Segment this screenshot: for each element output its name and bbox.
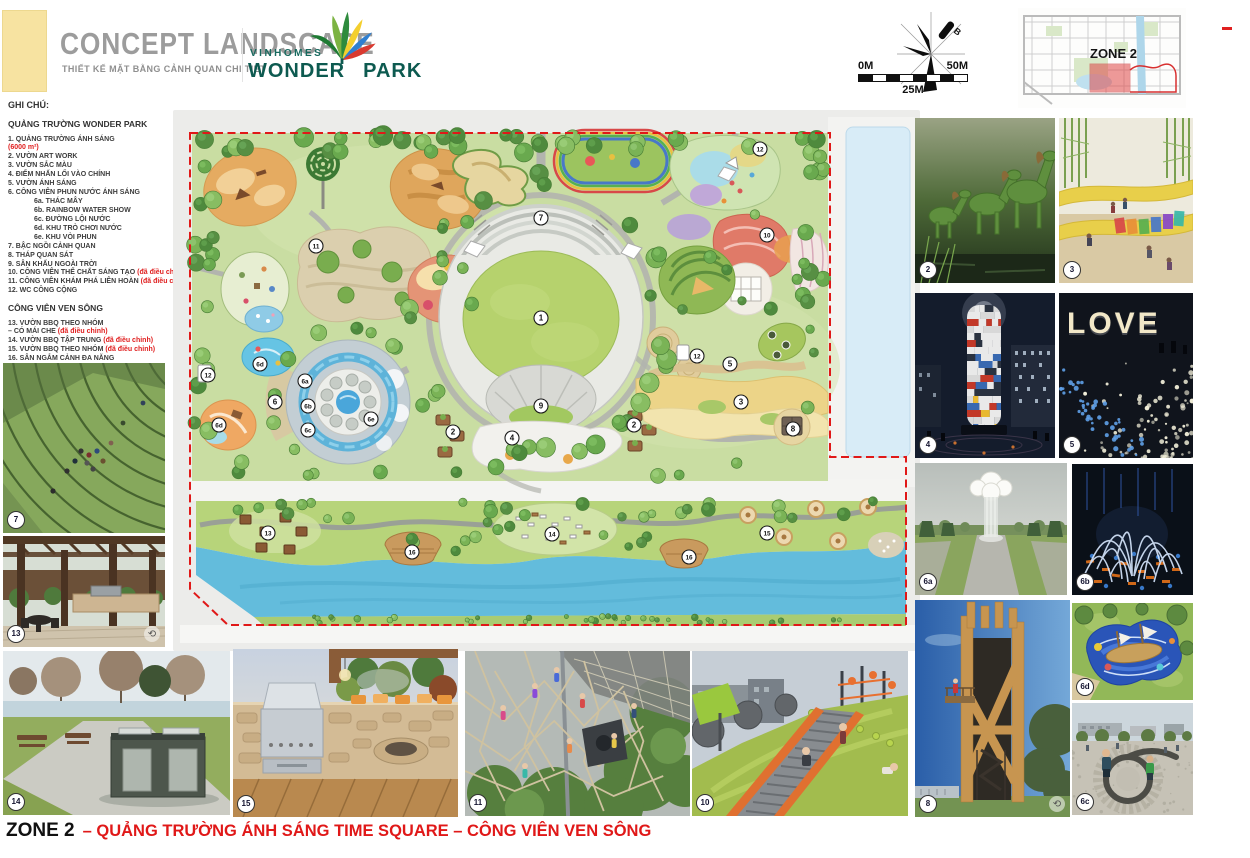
- svg-text:12: 12: [204, 373, 212, 380]
- scale-left-label: 0M: [858, 60, 873, 72]
- scale-bar: 0M 50M 25M: [858, 60, 968, 96]
- svg-text:15: 15: [763, 531, 771, 538]
- svg-text:6b: 6b: [304, 404, 312, 411]
- plan-marker-12: 12: [690, 349, 704, 363]
- svg-text:8: 8: [791, 425, 796, 434]
- plan-marker-11: 11: [309, 239, 323, 253]
- photo-rainbow-ribbon-playground: 3: [1059, 118, 1193, 283]
- plan-marker-15: 15: [760, 526, 774, 540]
- plan-marker-2: 2: [446, 425, 460, 439]
- small-pond: [245, 306, 283, 332]
- watermark-icon: ⟲: [144, 626, 160, 642]
- svg-text:9: 9: [539, 402, 544, 411]
- photo-badge: 13: [7, 625, 25, 643]
- svg-text:2: 2: [451, 428, 456, 437]
- legend-item: 6e. KHU VÒI PHUN: [8, 234, 178, 242]
- photo-park-bbq-station: 14: [3, 651, 230, 815]
- photo-hill-roller-slide: 10: [692, 651, 908, 816]
- legend: GHI CHÚ: QUẢNG TRƯỜNG WONDER PARK1. QUẢN…: [8, 100, 178, 364]
- scale-mid-label: 25M: [858, 84, 968, 96]
- legend-item: 6d. KHU TRÒ CHƠI NƯỚC: [8, 225, 178, 233]
- scale-bar-segments: [858, 74, 968, 82]
- legend-heading: GHI CHÚ:: [8, 100, 178, 110]
- photo-wooden-observation-tower: 8 ⟲: [915, 600, 1070, 817]
- photo-badge: 6a: [919, 573, 937, 591]
- plan-marker-13: 13: [261, 526, 275, 540]
- pebble-patch: [868, 532, 904, 558]
- zone-description: – QUẢNG TRƯỜNG ÁNH SÁNG TIME SQUARE – CÔ…: [83, 822, 652, 840]
- plan-marker-6: 6: [268, 395, 282, 409]
- plan-marker-6d: 6d: [212, 418, 226, 432]
- plan-marker-8: 8: [786, 422, 800, 436]
- love-sign: LOVE: [1067, 307, 1161, 340]
- plan-marker-3: 3: [734, 395, 748, 409]
- plan-marker-2: 2: [627, 418, 641, 432]
- plan-marker-7: 7: [534, 211, 548, 225]
- red-tick-mark: [1222, 27, 1232, 30]
- photo-badge: 8: [919, 795, 937, 813]
- photo-badge: 3: [1063, 261, 1081, 279]
- photo-badge: 10: [696, 794, 714, 812]
- svg-text:5: 5: [728, 360, 733, 369]
- photo-illuminated-fountain: 6b: [1072, 464, 1193, 595]
- photo-stone-bbq-kitchen: 15: [233, 649, 458, 817]
- legend-item: 7. BẬC NGỒI CẢNH QUAN: [8, 243, 178, 251]
- svg-text:6e: 6e: [367, 417, 375, 424]
- photo-grass-amphitheater: 7: [3, 363, 165, 533]
- legend-item: 1. QUẢNG TRƯỜNG ÁNH SÁNG(6000 m²): [8, 136, 178, 152]
- svg-text:14: 14: [548, 532, 556, 539]
- svg-text:7: 7: [539, 214, 544, 223]
- zone-label: ZONE 2: [6, 820, 75, 841]
- svg-text:6a: 6a: [301, 379, 309, 386]
- plan-marker-16: 16: [405, 545, 419, 559]
- photo-badge: 4: [919, 436, 937, 454]
- site-plan: 179422111012121253866a6b6c6d6d6e13161416…: [180, 117, 915, 643]
- svg-text:12: 12: [693, 354, 701, 361]
- svg-text:3: 3: [739, 398, 744, 407]
- photo-topiary-horses: 2: [915, 118, 1055, 283]
- photo-light-tower-night: 4: [915, 293, 1055, 458]
- photo-badge: 2: [919, 261, 937, 279]
- legend-item: 6. CÔNG VIÊN PHUN NƯỚC ÁNH SÁNG: [8, 189, 178, 197]
- svg-text:6d: 6d: [256, 362, 264, 369]
- plan-marker-5: 5: [723, 357, 737, 371]
- photo-stone-spiral-water-channel: 6c: [1072, 703, 1193, 815]
- svg-text:12: 12: [756, 147, 764, 154]
- sheet-caption: ZONE 2– QUẢNG TRƯỜNG ÁNH SÁNG TIME SQUAR…: [6, 820, 651, 842]
- watermark-icon: ⟲: [1049, 796, 1065, 812]
- legend-item: 15. VƯỜN BBQ THEO NHÓM (đã điều chỉnh): [8, 346, 178, 354]
- photo-badge: 6c: [1076, 793, 1094, 811]
- photo-aerial-water-playground: 6d: [1072, 603, 1193, 700]
- photo-badge: 6d: [1076, 678, 1094, 696]
- plan-marker-4: 4: [505, 431, 519, 445]
- svg-text:4: 4: [510, 434, 515, 443]
- purple-zone: [667, 214, 711, 240]
- plan-marker-14: 14: [545, 527, 559, 541]
- svg-text:6: 6: [273, 398, 278, 407]
- grill-lid: [263, 683, 321, 709]
- legend-item: 12. WC CÔNG CỘNG: [8, 287, 178, 295]
- plan-marker-6a: 6a: [298, 374, 312, 388]
- photo-badge: 7: [7, 511, 25, 529]
- accent-bar: [2, 10, 47, 92]
- plan-marker-1: 1: [534, 311, 548, 325]
- plan-marker-12: 12: [753, 142, 767, 156]
- plan-marker-9: 9: [534, 399, 548, 413]
- photo-badge: 5: [1063, 436, 1081, 454]
- legend-item: 2. VƯỜN ART WORK: [8, 153, 178, 161]
- north-label: B: [952, 26, 964, 38]
- mosaic-light-tower: [967, 305, 1001, 431]
- mid-road: [190, 479, 908, 501]
- plan-marker-16: 16: [682, 550, 696, 564]
- concept-landscape-board: CONCEPT LANDSCAPE THIẾT KẾ MẶT BẰNG CẢNH…: [0, 0, 1250, 858]
- legend-item: 11. CÔNG VIÊN KHÁM PHÁ LIÊN HOÀN (đã điề…: [8, 278, 178, 286]
- plan-marker-6d: 6d: [253, 357, 267, 371]
- svg-text:1: 1: [539, 314, 544, 323]
- legend-section-title: CÔNG VIÊN VEN SÔNG: [8, 304, 178, 314]
- sport-lawn: [659, 246, 735, 314]
- legend-item: 10. CÔNG VIÊN THỂ CHẤT SÁNG TẠO (đã điều…: [8, 269, 178, 277]
- zone2-highlight: [1090, 64, 1130, 92]
- zone2-map-label: ZONE 2: [1090, 46, 1137, 61]
- legend-item: 6b. RAINBOW WATER SHOW: [8, 207, 178, 215]
- svg-text:16: 16: [408, 550, 416, 557]
- page-subtitle: THIẾT KẾ MẶT BẰNG CẢNH QUAN CHI TIẾT: [62, 64, 266, 74]
- grill-body: [261, 709, 323, 757]
- legend-item: 14. VƯỜN BBQ TẬP TRUNG (đã điều chỉnh): [8, 337, 178, 345]
- plan-marker-6c: 6c: [301, 423, 315, 437]
- plan-marker-12: 12: [201, 368, 215, 382]
- legend-item: 16. SÂN NGẮM CẢNH ĐA NĂNG: [8, 355, 178, 363]
- legend-item: 3. VƯỜN SẮC MÀU: [8, 162, 178, 170]
- photo-cloud-waterfall: 6a: [915, 463, 1067, 595]
- legend-item: 8. THÁP QUAN SÁT: [8, 252, 178, 260]
- scale-right-label: 50M: [947, 60, 968, 72]
- photo-led-rose-field: LOVE LOVE 5: [1059, 293, 1193, 458]
- svg-text:10: 10: [763, 233, 771, 240]
- svg-text:6d: 6d: [215, 423, 223, 430]
- vinhomes-wonder-park-logo: VINHOMES WONDERPARK: [248, 8, 388, 94]
- legend-item: 9. SÂN KHẤU NGOÀI TRỜI: [8, 261, 178, 269]
- plan-marker-6b: 6b: [301, 399, 315, 413]
- zone-key-map: ZONE 2: [1018, 8, 1186, 108]
- legend-item: 13. VƯỜN BBQ THEO NHÓM– CÓ MÁI CHE (đã đ…: [8, 320, 178, 336]
- legend-item: 6c. ĐƯỜNG LỘI NƯỚC: [8, 216, 178, 224]
- header-divider: [242, 28, 243, 82]
- legend-item: 6a. THÁC MÂY: [8, 198, 178, 206]
- wc-building: [677, 345, 689, 360]
- photo-badge: 15: [237, 795, 255, 813]
- legend-item: 5. VƯỜN ÁNH SÁNG: [8, 180, 178, 188]
- photo-badge: 14: [7, 793, 25, 811]
- svg-text:6c: 6c: [304, 428, 312, 435]
- plan-marker-10: 10: [760, 228, 774, 242]
- brand-wonder-park: WONDERPARK: [248, 60, 422, 83]
- photo-badge: 6b: [1076, 573, 1094, 591]
- svg-text:11: 11: [313, 244, 320, 251]
- svg-text:2: 2: [632, 421, 637, 430]
- photo-pergola-bbq: 13 ⟲: [3, 536, 165, 647]
- brand-vinhomes: VINHOMES: [250, 48, 323, 59]
- legend-item: 4. ĐIỂM NHẤN LỐI VÀO CHÍNH: [8, 171, 178, 179]
- photo-climbing-nets: 11: [465, 651, 690, 816]
- svg-text:13: 13: [264, 531, 272, 538]
- legend-section-title: QUẢNG TRƯỜNG WONDER PARK: [8, 120, 178, 130]
- adjacent-block: [846, 127, 910, 457]
- plan-marker-6e: 6e: [364, 412, 378, 426]
- svg-text:16: 16: [685, 555, 693, 562]
- photo-badge: 11: [469, 794, 487, 812]
